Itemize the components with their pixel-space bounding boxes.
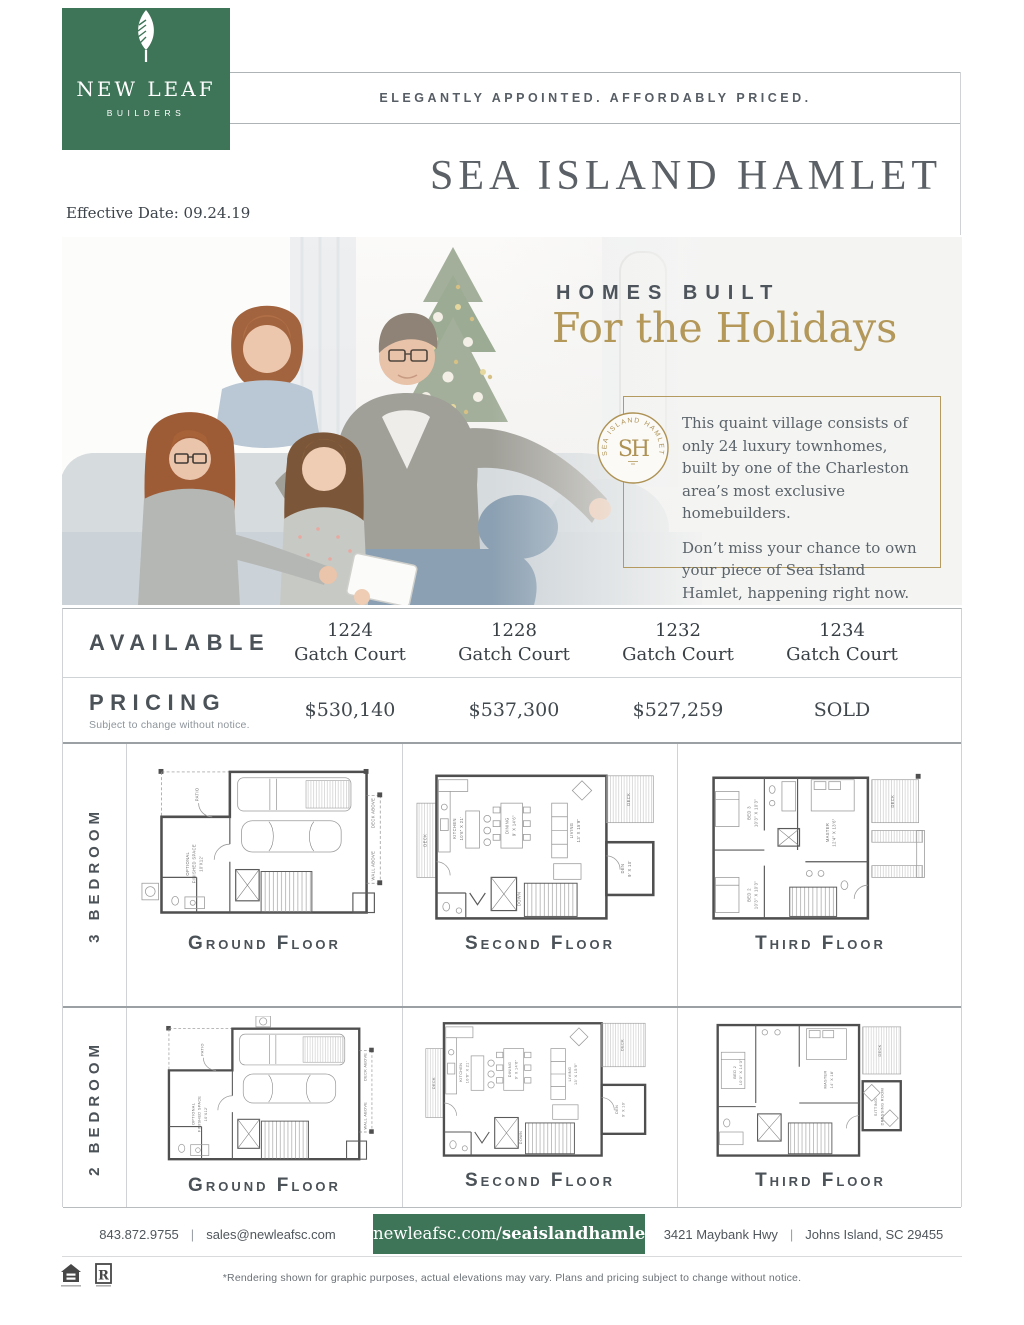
unit-header-1232: 1232 Gatch Court — [596, 619, 760, 668]
brand-tagline: ELEGANTLY APPOINTED. AFFORDABLY PRICED. — [379, 91, 811, 105]
svg-text:DRESSING ROOM: DRESSING ROOM — [880, 1088, 884, 1125]
footer-email[interactable]: sales@newleafsc.com — [206, 1227, 336, 1242]
floorplan-2br-ground: PATIO OPTIONAL FINISHED SPACE 10'X12' — [149, 1016, 381, 1168]
svg-text:9' X 10': 9' X 10' — [627, 860, 632, 877]
svg-text:12'4" X 13'6": 12'4" X 13'6" — [831, 818, 836, 846]
hero-info-box: This quaint village consists of only 24 … — [623, 396, 941, 568]
svg-text:DECK: DECK — [620, 1039, 624, 1051]
svg-text:PATIO: PATIO — [194, 788, 199, 802]
unit-header-1224: 1224 Gatch Court — [268, 619, 432, 668]
brand-name: NEW LEAF — [76, 77, 215, 101]
svg-text:BED 2: BED 2 — [746, 888, 751, 902]
svg-text:MASTER: MASTER — [823, 1070, 827, 1088]
tagline-band: ELEGANTLY APPOINTED. AFFORDABLY PRICED. — [230, 72, 961, 124]
svg-text:14' X 18': 14' X 18' — [829, 1071, 833, 1089]
hero-kicker: HOMES BUILT — [556, 282, 780, 305]
caption-2br-second: Second Floor — [465, 1170, 615, 1192]
svg-text:FINISHED SPACE: FINISHED SPACE — [191, 844, 196, 883]
svg-text:DOWN: DOWN — [519, 1131, 523, 1144]
hero-headline: For the Holidays — [552, 304, 897, 352]
price-1232: $527,259 — [596, 699, 760, 721]
brand-descriptor: BUILDERS — [107, 108, 186, 118]
plan-2br-second: DECK DECK DEN 9' X 10' KITCHEN 10'6" X 2… — [402, 1008, 677, 1207]
flyer-page: NEW LEAF BUILDERS ELEGANTLY APPOINTED. A… — [0, 0, 1024, 1325]
svg-text:DECK: DECK — [626, 793, 631, 806]
effective-date: Effective Date: 09.24.19 — [66, 204, 250, 222]
page-title: SEA ISLAND HAMLET — [410, 152, 962, 200]
pricing-note: Subject to change without notice. — [63, 719, 268, 731]
svg-text:13' X 15'9": 13' X 15'9" — [574, 1063, 578, 1085]
two-bedroom-label: 2 BEDROOM — [86, 1040, 103, 1176]
plan-2br-third: DECK SITTING/ DRESSING ROOM BED 2 10'3" … — [677, 1008, 963, 1207]
available-label: AVAILABLE — [63, 630, 268, 656]
available-row: AVAILABLE 1224 Gatch Court 1228 Gatch Co… — [63, 609, 961, 678]
two-bedroom-row: 2 BEDROOM PATIO — [63, 1006, 961, 1208]
svg-text:DECK: DECK — [877, 1044, 881, 1056]
svg-text:DECK: DECK — [890, 795, 895, 808]
caption-2br-third: Third Floor — [755, 1170, 886, 1192]
footer-phone[interactable]: 843.872.9755 — [99, 1227, 179, 1242]
footer-bar: 843.872.9755|sales@newleafsc.com newleaf… — [62, 1214, 962, 1254]
footer-url-prefix: newleafsc.com/ — [373, 1224, 502, 1243]
floorplan-3br-third: DECK BED 3 10'3" X 10'3" BED 2 10'3" X 1… — [696, 768, 946, 926]
svg-text:OPTIONAL: OPTIONAL — [184, 851, 189, 875]
footer-city: Johns Island, SC 29455 — [805, 1227, 943, 1242]
svg-text:DINING: DINING — [508, 1062, 512, 1077]
svg-text:13' X 15'9": 13' X 15'9" — [576, 818, 581, 842]
svg-text:DINING: DINING — [505, 817, 510, 834]
svg-text:BED 2: BED 2 — [732, 1066, 736, 1079]
svg-text:10'X12': 10'X12' — [204, 1106, 208, 1121]
floorplan-2br-second: DECK DECK DEN 9' X 10' KITCHEN 10'6" X 2… — [424, 1016, 656, 1163]
plan-3br-second: DECK DECK DEN 9' X 10' KITCHEN 10'6" X 2 — [402, 744, 677, 1006]
svg-text:DEN: DEN — [620, 864, 625, 874]
floorplan-3br-ground: PATIO OPTIONAL FINISHED SPACE 10'X12' — [140, 768, 390, 926]
leaf-icon — [126, 8, 166, 71]
unit-header-1228: 1228 Gatch Court — [432, 619, 596, 668]
price-1224: $530,140 — [268, 699, 432, 721]
svg-text:SITTING/: SITTING/ — [874, 1097, 878, 1117]
caption-3br-third: Third Floor — [755, 933, 886, 955]
footer-contact: 843.872.9755|sales@newleafsc.com — [62, 1227, 373, 1242]
svg-text:10'3" X 10'3": 10'3" X 10'3" — [753, 799, 758, 827]
seal-monogram: SH — [618, 437, 649, 462]
svg-text:10'6" X 21': 10'6" X 21' — [459, 817, 464, 841]
community-seal: SEA ISLAND HAMLET SH — [596, 411, 670, 490]
svg-text:MASTER: MASTER — [824, 823, 829, 842]
svg-text:10'3" X 10'3": 10'3" X 10'3" — [753, 881, 758, 909]
svg-text:FINISHED SPACE: FINISHED SPACE — [197, 1096, 201, 1133]
unit-header-1234: 1234 Gatch Court — [760, 619, 924, 668]
hero-body-1: This quaint village consists of only 24 … — [682, 412, 926, 525]
svg-text:DECK: DECK — [432, 1077, 436, 1089]
svg-text:BED 3: BED 3 — [746, 806, 751, 820]
svg-text:DECK ABOVE: DECK ABOVE — [363, 1053, 367, 1081]
pricing-row: PRICING Subject to change without notice… — [63, 678, 961, 744]
caption-3br-second: Second Floor — [465, 933, 615, 955]
three-bedroom-label: 3 BEDROOM — [86, 807, 103, 943]
plan-3br-ground: PATIO OPTIONAL FINISHED SPACE 10'X12' — [126, 744, 402, 1006]
svg-text:10'X12': 10'X12' — [198, 856, 203, 872]
status-1234-sold: SOLD — [760, 699, 924, 721]
availability-table: AVAILABLE 1224 Gatch Court 1228 Gatch Co… — [62, 608, 962, 1207]
pricing-label: PRICING — [63, 690, 268, 716]
floorplan-3br-second: DECK DECK DEN 9' X 10' KITCHEN 10'6" X 2 — [415, 768, 665, 926]
footer-url-slug: seaislandhamlet — [502, 1224, 653, 1243]
price-1228: $537,300 — [432, 699, 596, 721]
disclaimer-text: *Rendering shown for graphic purposes, a… — [0, 1272, 1024, 1284]
floorplan-2br-third: DECK SITTING/ DRESSING ROOM BED 2 10'3" … — [705, 1016, 937, 1163]
footer-address: 3421 Maybank Hwy|Johns Island, SC 29455 — [645, 1227, 962, 1242]
footer-url-link[interactable]: newleafsc.com/seaislandhamlet — [373, 1214, 645, 1254]
svg-text:PATIO: PATIO — [200, 1043, 204, 1056]
svg-text:DECK: DECK — [423, 834, 428, 847]
three-bedroom-row: 3 BEDROOM PATIO — [63, 744, 961, 1006]
footer-street: 3421 Maybank Hwy — [664, 1227, 778, 1242]
pricing-label-group: PRICING Subject to change without notice… — [63, 690, 268, 731]
svg-text:10'3" X 14'3": 10'3" X 14'3" — [739, 1059, 743, 1085]
svg-text:OPTIONAL: OPTIONAL — [191, 1103, 195, 1125]
svg-text:9' X 14'6": 9' X 14'6" — [512, 815, 517, 836]
svg-text:DEN: DEN — [615, 1105, 619, 1114]
brand-logo: NEW LEAF BUILDERS — [62, 8, 230, 150]
plan-2br-ground: PATIO OPTIONAL FINISHED SPACE 10'X12' — [126, 1008, 402, 1207]
svg-text:LIVING: LIVING — [568, 1067, 572, 1082]
svg-text:KITCHEN: KITCHEN — [459, 1063, 463, 1082]
svg-text:DOWN: DOWN — [516, 892, 521, 907]
caption-3br-ground: Ground Floor — [188, 933, 341, 955]
footer-divider — [62, 1256, 962, 1257]
caption-2br-ground: Ground Floor — [188, 1175, 341, 1197]
svg-text:9' X 10': 9' X 10' — [621, 1102, 625, 1117]
hero-body-2: Don’t miss your chance to own your piece… — [682, 537, 926, 605]
svg-text:10'6" X 21': 10'6" X 21' — [465, 1061, 469, 1083]
plan-3br-third: DECK BED 3 10'3" X 10'3" BED 2 10'3" X 1… — [677, 744, 963, 1006]
svg-text:DECK ABOVE: DECK ABOVE — [370, 798, 375, 828]
svg-text:WALL ABOVE: WALL ABOVE — [363, 1102, 367, 1130]
svg-text:9' X 14'6": 9' X 14'6" — [514, 1059, 518, 1079]
svg-text:LIVING: LIVING — [569, 823, 574, 839]
svg-text:KITCHEN: KITCHEN — [452, 818, 457, 839]
svg-text:WALL ABOVE: WALL ABOVE — [370, 851, 375, 881]
